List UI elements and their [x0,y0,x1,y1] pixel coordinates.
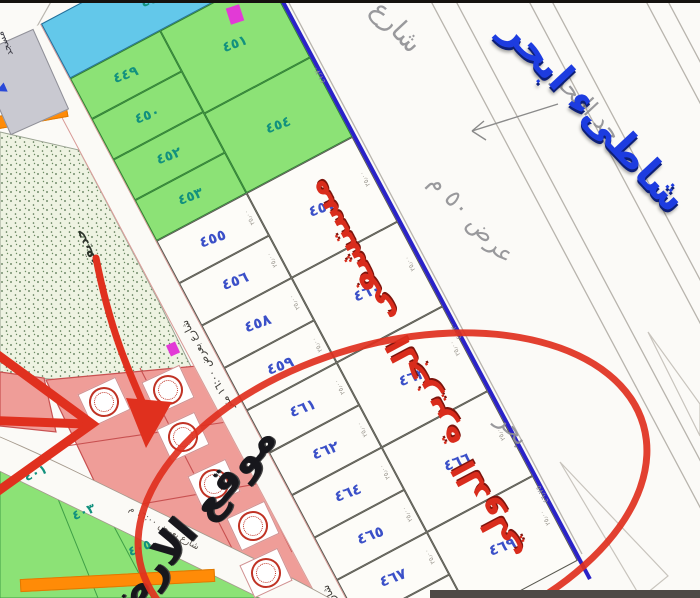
cadastral-map: شارع بعرض ١٦:٠٠ متر شارع بعرض ١٦:٠٠ ٤٤٧ … [0,0,700,598]
plot-dimension: ٢٥٫٠٠ [310,336,325,354]
plot-number: ٤٥٨ [242,310,274,336]
road-note: عرض ٥٠ م [423,168,520,269]
plot-dimension: ٢٥٫٠٠ [265,251,280,269]
road-note: شارع [364,0,428,59]
plot-stamp-seal [141,365,194,415]
pink-plots-wedge [0,372,56,432]
bottom-edge [430,590,700,598]
plot-dimension: ٢٥٫٠٠ [287,294,302,312]
beach-title-annotation: شاطىء ابحر [492,8,696,222]
plot-number: ٤٥٥ [197,225,229,251]
plot-number: ٤٥١ [220,32,250,56]
lane-arrow [648,332,700,436]
plot-number: ٤٤٩ [111,63,141,87]
plot-number: ٤٥٦ [219,267,251,293]
qibla-arrow-icon [0,83,8,96]
plot-number: ٤٥٢ [154,144,184,168]
plot-dimension: ٢٥٫٠٠ [402,254,417,272]
park-label: حديقة [72,227,102,269]
magenta-marker [166,341,180,356]
plot-number: ٤٥٣ [176,185,206,209]
plot-number: ٤٥٠ [133,104,163,128]
top-edge [0,0,700,3]
mosque-label: مسجد [0,29,16,57]
plot-dimension: ٢٥٫٠٠ [242,209,257,227]
plot-dimension: ٢٥٫٠٠ [357,170,372,188]
plot-number: ٤٥٤ [264,113,294,137]
plot-stamp-seal [77,377,130,427]
